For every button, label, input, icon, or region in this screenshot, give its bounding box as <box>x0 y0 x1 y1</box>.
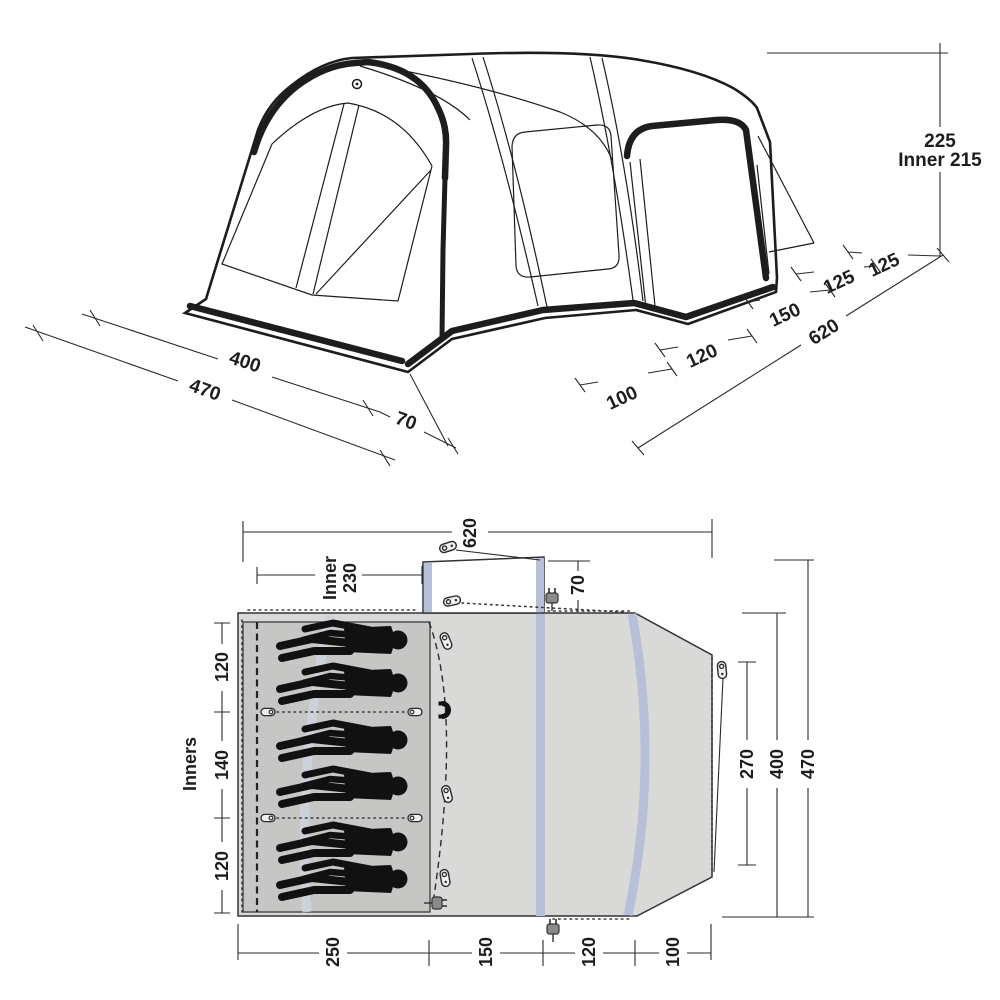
dim-label-height: 225 <box>924 131 956 152</box>
dim-label-rear-a: 125 <box>865 249 903 282</box>
dim-label-inner-width-1: Inner <box>320 556 340 600</box>
plan-dim-inner-width: Inner 230 <box>257 556 422 600</box>
dim-label-bottom-0: 250 <box>323 937 343 967</box>
plan-dim-right: 270 400 470 <box>722 560 818 917</box>
rear-guyline <box>758 136 814 252</box>
inners-label: Inners <box>180 737 200 791</box>
air-beam-straight <box>536 613 545 916</box>
dim-depth-segments: 125 125 150 120 100 <box>575 245 940 415</box>
dim-label-front-a: 120 <box>683 340 721 372</box>
toggle-peg-icon <box>261 814 275 821</box>
tent-perspective-view: 225 Inner 215 620 125 125 150 120 100 <box>25 43 982 466</box>
dim-label-bottom-3: 100 <box>663 937 683 967</box>
dim-depth-total: 620 <box>632 248 949 455</box>
front-window <box>222 103 432 301</box>
dim-label-plan-depth: 620 <box>460 518 480 548</box>
dim-height: 225 Inner 215 <box>767 43 982 257</box>
dim-label-bottom-1: 150 <box>476 937 496 967</box>
dim-label-inner-width-2: 230 <box>340 563 360 593</box>
dim-label-left-2: 120 <box>212 851 232 881</box>
plan-dim-left: 120 140 120 Inners <box>180 623 232 913</box>
dim-label-rear-b: 125 <box>820 266 858 299</box>
dim-label-width-porch: 70 <box>392 408 419 435</box>
dim-label-canopy-depth: 70 <box>568 575 588 595</box>
toggle-peg-icon <box>408 814 422 821</box>
plan-dim-top: 620 <box>243 518 712 562</box>
power-plug-icon <box>547 919 559 942</box>
dim-label-right-total: 470 <box>798 749 818 779</box>
diagram-canvas: 225 Inner 215 620 125 125 150 120 100 <box>0 0 1000 1000</box>
toggle-peg-icon <box>261 708 275 715</box>
tent-dimension-diagram: 225 Inner 215 620 125 125 150 120 100 <box>0 0 1000 1000</box>
dim-label-depth-total: 620 <box>805 315 843 350</box>
peg-icon <box>439 540 458 553</box>
side-window <box>512 125 619 277</box>
dim-label-width-total: 470 <box>186 375 223 405</box>
toggle-peg-icon <box>408 708 422 715</box>
dim-label-bottom-2: 120 <box>579 937 599 967</box>
dim-label-right-door: 270 <box>737 749 757 779</box>
plan-dim-bottom: 250 150 120 100 <box>238 924 711 967</box>
dim-label-mid: 150 <box>766 299 804 331</box>
peg-icon <box>717 661 727 679</box>
canopy <box>423 540 544 613</box>
rear-door <box>627 120 769 308</box>
tent-floor-plan: 620 Inner 230 70 120 140 120 Inners 270 <box>180 518 818 967</box>
dim-label-inner-height: Inner 215 <box>898 150 982 171</box>
dim-label-width-inner: 400 <box>227 348 264 378</box>
dim-label-front-b: 100 <box>603 382 641 414</box>
dim-label-right-inner: 400 <box>767 749 787 779</box>
dim-label-left-0: 120 <box>212 652 232 682</box>
dim-width-lines: 400 470 70 <box>25 310 458 466</box>
plan-dim-canopy: 70 <box>548 561 590 612</box>
dim-label-left-1: 140 <box>212 750 232 780</box>
